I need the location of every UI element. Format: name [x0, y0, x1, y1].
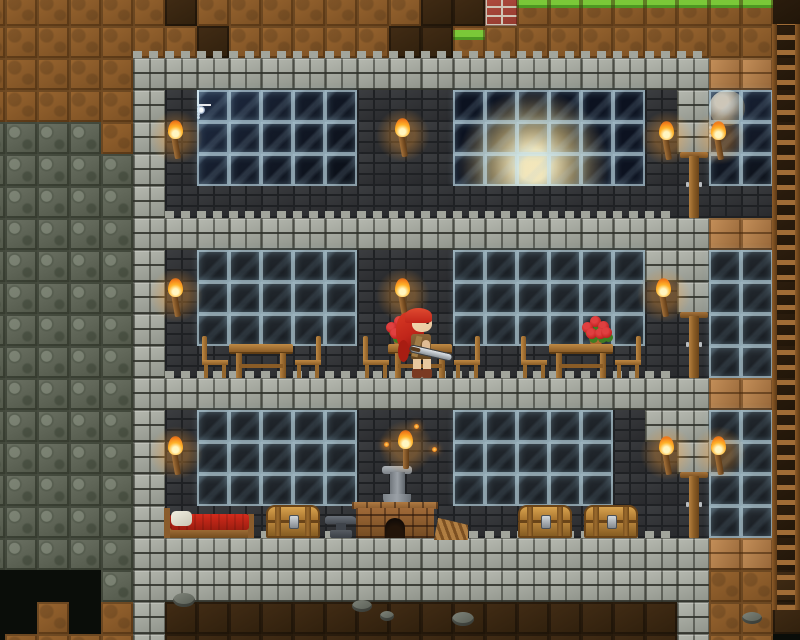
floor-merlon-trim — [133, 51, 709, 58]
ladder-rungs — [775, 24, 797, 610]
table[interactable] — [549, 344, 613, 378]
table[interactable] — [229, 344, 293, 378]
torch[interactable] — [394, 432, 418, 472]
character-hair-strand — [398, 340, 409, 362]
character[interactable] — [396, 308, 440, 378]
door[interactable] — [680, 312, 708, 378]
chair[interactable] — [202, 336, 228, 378]
chest[interactable] — [266, 505, 320, 538]
spark — [384, 442, 389, 447]
torch-flame — [656, 278, 671, 297]
door-post — [689, 316, 699, 378]
floor-merlon-trim — [165, 211, 677, 218]
chair[interactable] — [295, 336, 321, 378]
ladder-rail — [772, 24, 777, 610]
chest-clasp — [607, 515, 617, 529]
torch[interactable] — [655, 123, 679, 163]
chair-leg — [541, 365, 545, 378]
chair-leg — [635, 365, 639, 378]
door-hinge — [686, 342, 689, 347]
bed-pillow — [171, 511, 192, 526]
door-post — [689, 156, 699, 218]
ladder-rail — [795, 24, 800, 610]
chair-leg — [204, 365, 208, 378]
torch[interactable] — [707, 123, 731, 163]
chair-leg — [222, 365, 226, 378]
torch[interactable] — [164, 438, 188, 478]
ladder[interactable] — [772, 24, 800, 610]
door-hinge — [699, 502, 702, 507]
entity-layer — [0, 0, 800, 640]
torch-flame — [168, 120, 183, 139]
chair[interactable] — [615, 336, 641, 378]
door-hinge — [686, 182, 689, 187]
character-boot — [412, 369, 422, 378]
bellows[interactable] — [434, 514, 468, 540]
furnace[interactable] — [352, 466, 438, 538]
chair-leg — [383, 365, 387, 378]
chest-band — [275, 507, 281, 536]
bed[interactable] — [164, 506, 254, 538]
door-post — [689, 476, 699, 538]
rock — [380, 611, 394, 621]
door-hinge — [699, 182, 702, 187]
chest-clasp — [541, 515, 551, 529]
torch-flame — [711, 121, 726, 140]
chair-leg — [474, 365, 478, 378]
chair[interactable] — [521, 336, 547, 378]
chest-band — [593, 507, 599, 536]
spark-particle — [414, 424, 419, 429]
rose-bloom — [601, 327, 612, 338]
furnace-mouth — [385, 518, 405, 538]
rock — [352, 600, 372, 612]
torch[interactable] — [164, 280, 188, 320]
rock — [452, 612, 474, 626]
chest-clasp — [289, 515, 299, 529]
game-scene — [0, 0, 800, 640]
torch-flame — [395, 118, 410, 137]
door[interactable] — [680, 472, 708, 538]
table-stretcher — [559, 364, 603, 368]
door-hinge — [686, 502, 689, 507]
anvil-base — [330, 530, 352, 538]
chest-band — [305, 507, 311, 536]
rock — [173, 593, 195, 607]
rock — [742, 612, 762, 624]
torch-flame — [168, 436, 183, 455]
sword-hilt — [410, 346, 421, 352]
torch[interactable] — [652, 280, 676, 320]
torch-flame — [168, 278, 183, 297]
torch-flame — [659, 436, 674, 455]
torch[interactable] — [391, 120, 415, 160]
torch-flame — [398, 430, 413, 449]
chair[interactable] — [363, 336, 389, 378]
chest-band — [557, 507, 563, 536]
spark — [414, 424, 419, 429]
chair-leg — [315, 365, 319, 378]
spark — [432, 447, 437, 452]
chair-leg — [617, 365, 621, 378]
spark-particle — [432, 447, 437, 452]
chair-leg — [523, 365, 527, 378]
torch-flame — [711, 436, 726, 455]
torch[interactable] — [655, 438, 679, 478]
chair-leg — [365, 365, 369, 378]
chair-leg — [456, 365, 460, 378]
character-hair-top — [405, 308, 432, 323]
torch-flame — [395, 278, 410, 297]
chest[interactable] — [518, 505, 572, 538]
chest[interactable] — [584, 505, 638, 538]
torch[interactable] — [164, 122, 188, 162]
table-stretcher — [239, 364, 283, 368]
spark-particle — [384, 442, 389, 447]
chair-leg — [297, 365, 301, 378]
chest-band — [623, 507, 629, 536]
door-hinge — [699, 342, 702, 347]
torch[interactable] — [707, 438, 731, 478]
character-boot — [422, 369, 432, 378]
chair[interactable] — [454, 336, 480, 378]
torch-flame — [659, 121, 674, 140]
chest-band — [527, 507, 533, 536]
